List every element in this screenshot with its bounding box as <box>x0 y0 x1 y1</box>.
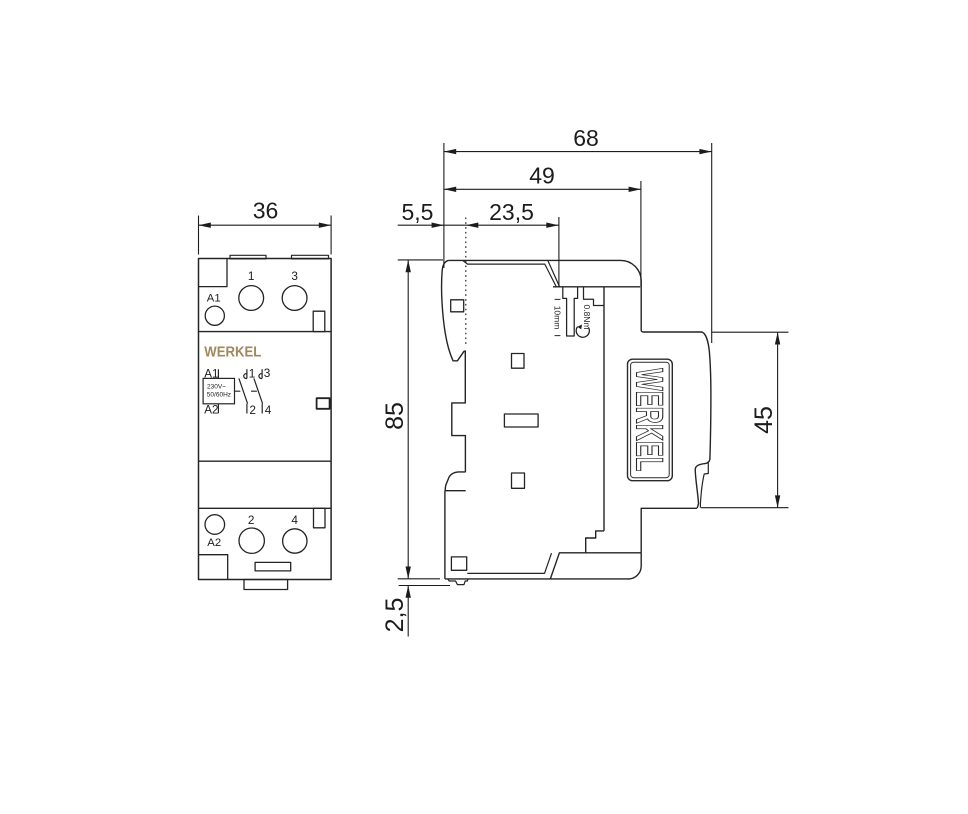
svg-text:A2: A2 <box>207 537 221 549</box>
svg-text:3: 3 <box>291 269 298 283</box>
svg-text:3: 3 <box>264 366 271 380</box>
svg-text:2: 2 <box>248 513 255 527</box>
svg-text:10mm: 10mm <box>553 306 563 330</box>
svg-text:1: 1 <box>249 366 256 380</box>
svg-text:4: 4 <box>265 403 272 417</box>
svg-text:1: 1 <box>248 269 255 283</box>
svg-text:45: 45 <box>750 406 778 434</box>
svg-text:A1: A1 <box>204 367 218 380</box>
svg-text:WERKEL: WERKEL <box>628 368 670 471</box>
svg-text:0.8Nm: 0.8Nm <box>582 304 592 329</box>
svg-text:A1: A1 <box>207 292 221 304</box>
svg-text:4: 4 <box>291 513 298 527</box>
svg-text:36: 36 <box>253 198 279 224</box>
svg-text:50/60Hz: 50/60Hz <box>207 392 231 399</box>
svg-text:WERKEL: WERKEL <box>204 344 261 360</box>
svg-text:68: 68 <box>573 125 599 151</box>
svg-text:2: 2 <box>249 403 256 417</box>
svg-text:A2: A2 <box>204 404 218 417</box>
svg-text:2,5: 2,5 <box>381 598 409 633</box>
svg-text:23,5: 23,5 <box>489 199 534 225</box>
svg-text:49: 49 <box>529 163 555 189</box>
svg-text:5,5: 5,5 <box>402 199 434 225</box>
svg-text:230V~: 230V~ <box>207 383 226 390</box>
svg-text:85: 85 <box>381 402 409 430</box>
